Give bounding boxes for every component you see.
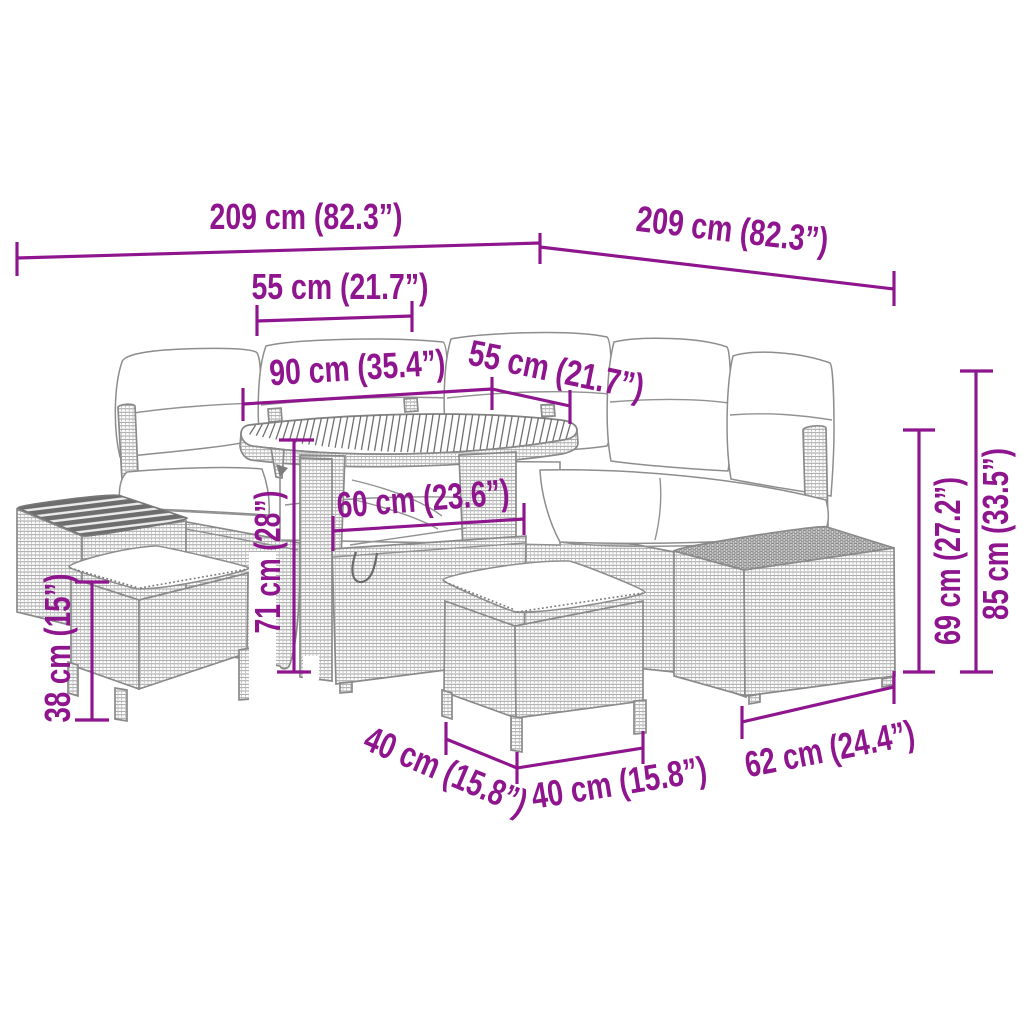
- svg-text:85 cm (33.5”): 85 cm (33.5”): [975, 448, 1016, 620]
- svg-text:69 cm (27.2”): 69 cm (27.2”): [927, 477, 968, 645]
- svg-text:71 cm (28”): 71 cm (28”): [247, 491, 288, 634]
- svg-text:209 cm (82.3”): 209 cm (82.3”): [210, 196, 403, 237]
- svg-text:38 cm (15”): 38 cm (15”): [37, 574, 78, 723]
- svg-text:55 cm (21.7”): 55 cm (21.7”): [252, 266, 429, 307]
